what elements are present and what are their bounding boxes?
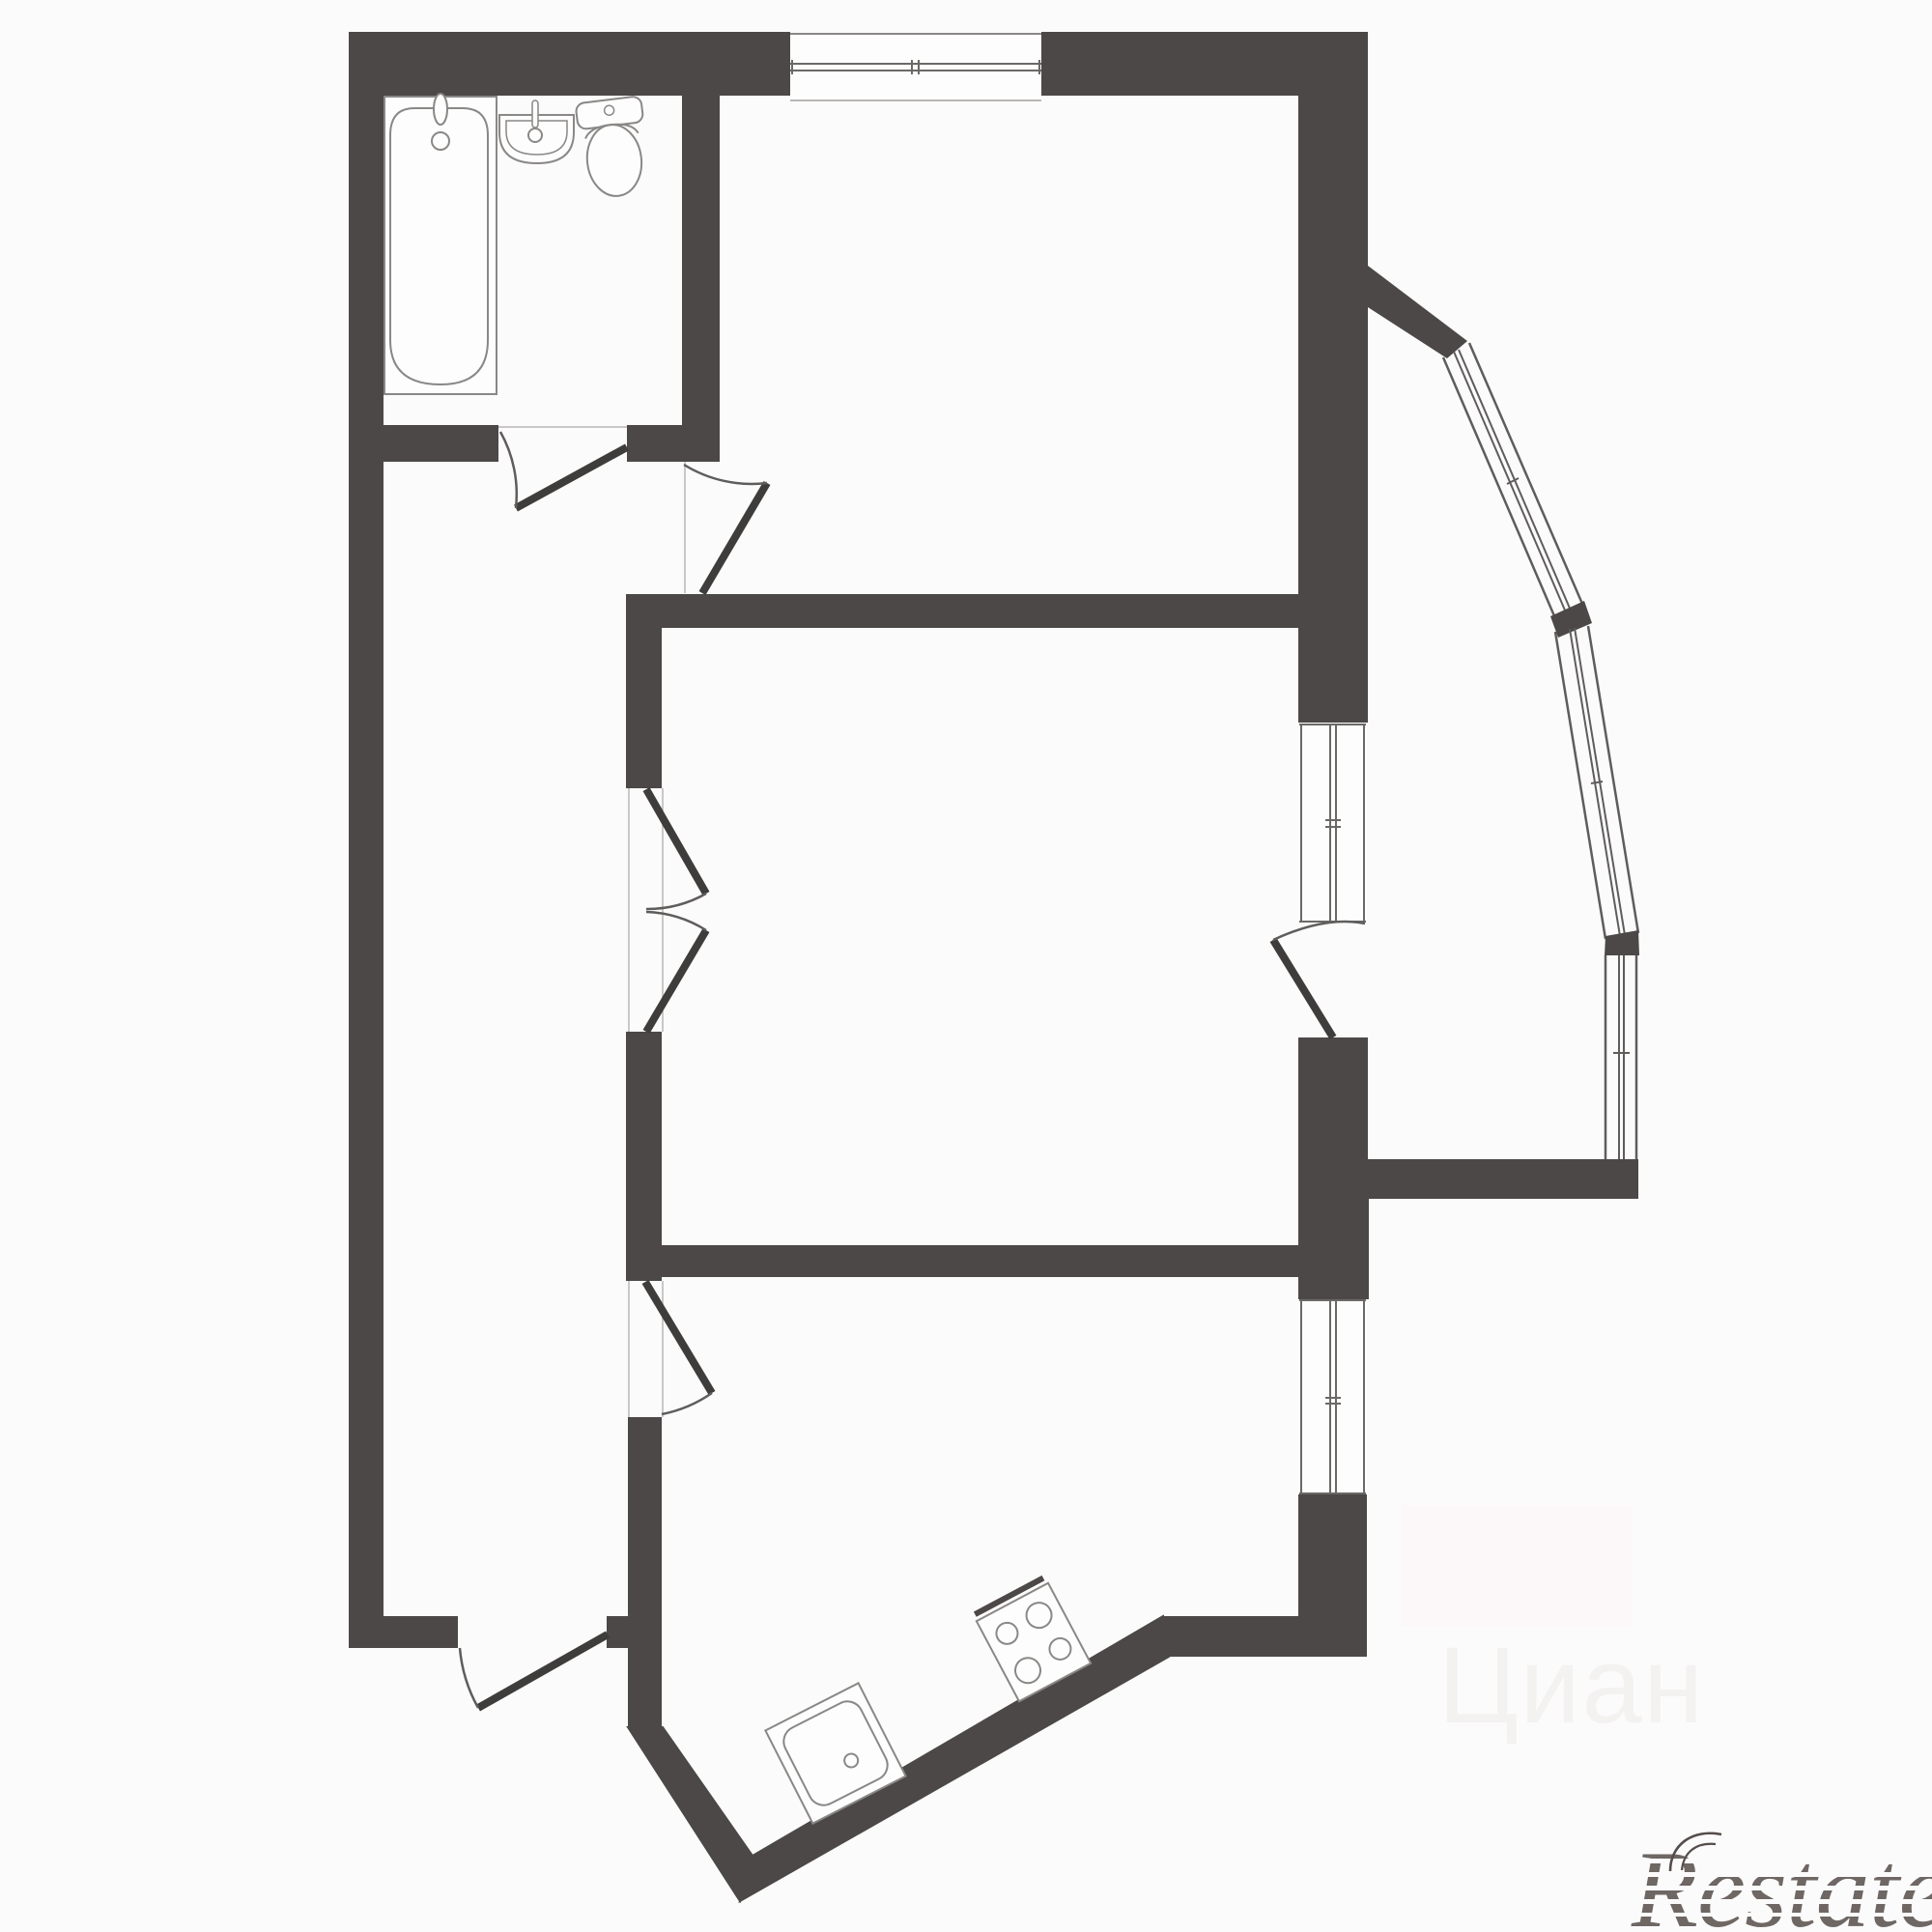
svg-text:Циан: Циан [1438,1625,1705,1746]
svg-text:Restate: Restate [1631,1830,1932,1932]
